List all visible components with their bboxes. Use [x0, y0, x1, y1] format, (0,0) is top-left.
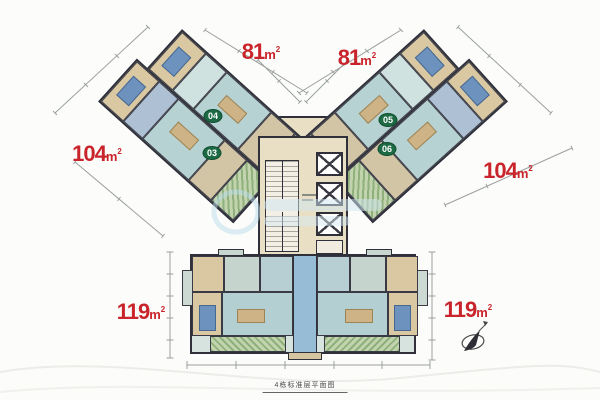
unit-badge-06: 06 — [378, 142, 397, 156]
area-label-104-left: 104m2 — [72, 141, 122, 167]
area-label-119-right: 119m2 — [444, 297, 493, 323]
room-living — [317, 292, 388, 336]
lobby-text-mark — [302, 199, 313, 201]
entrance-bump — [288, 352, 322, 360]
bay-window — [366, 249, 392, 256]
compass-icon — [461, 321, 488, 351]
unit-119-right — [317, 256, 418, 352]
room-bedroom — [388, 292, 418, 336]
sofa-icon — [217, 95, 247, 124]
area-label-119-left: 119m2 — [117, 299, 166, 325]
room — [192, 256, 224, 292]
room — [350, 256, 386, 292]
elevator-icon — [316, 152, 343, 176]
decorative-curve — [0, 366, 600, 381]
bay-window — [218, 249, 244, 256]
room-living — [222, 292, 293, 336]
unit-119-left — [192, 256, 293, 352]
bottom-block — [190, 254, 416, 354]
room — [317, 256, 350, 292]
bed-icon — [394, 305, 411, 331]
plan-caption: 4栋标准层平面图 — [263, 380, 348, 393]
lobby-text-mark — [302, 194, 317, 196]
sofa-icon — [345, 309, 373, 323]
central-corridor — [293, 256, 317, 352]
room — [260, 256, 293, 292]
elevator-core — [258, 136, 348, 257]
area-label-81-top-right: 81m2 — [338, 45, 377, 71]
balcony — [210, 336, 286, 352]
area-label-104-right: 104m2 — [483, 158, 533, 184]
bed-icon — [161, 46, 191, 77]
room-bedroom — [192, 292, 222, 336]
sofa-icon — [169, 121, 199, 150]
sofa-icon — [237, 309, 265, 323]
unit-badge-05: 05 — [379, 113, 398, 127]
elevator-lobby-cell — [316, 240, 343, 254]
bay-window — [182, 270, 193, 306]
elevator-icon — [316, 182, 343, 206]
bed-icon — [415, 46, 445, 77]
unit-badge-03: 03 — [203, 146, 222, 160]
staircase — [265, 160, 299, 252]
bed-icon — [199, 305, 216, 331]
unit-badge-04: 04 — [204, 109, 223, 123]
elevator-icon — [316, 212, 343, 236]
bay-window — [417, 270, 428, 306]
room — [386, 256, 418, 292]
sofa-icon — [407, 121, 437, 150]
balcony — [324, 336, 400, 352]
stair-landing — [266, 199, 298, 212]
area-label-81-top-left: 81m2 — [242, 39, 281, 65]
floorplan-canvas: 81m2 81m2 104m2 104m2 119m2 119m2 04 03 … — [0, 0, 600, 400]
room — [224, 256, 260, 292]
